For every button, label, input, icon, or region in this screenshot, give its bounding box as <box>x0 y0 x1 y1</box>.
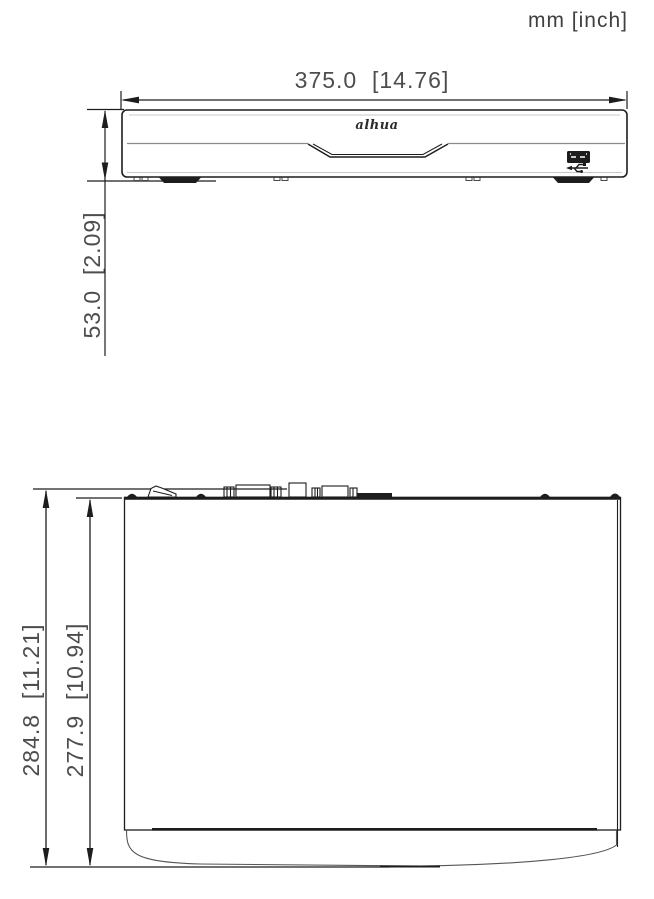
arrowhead-up-icon <box>87 499 94 518</box>
arrowhead-up-icon <box>102 110 109 128</box>
front-lip-curve <box>127 830 617 866</box>
top-outer-depth-dimension <box>30 489 390 867</box>
front-cover-notch <box>308 144 448 157</box>
screw-icon <box>127 494 137 497</box>
arrowhead-left-icon <box>121 97 139 104</box>
rear-connectors <box>127 483 620 497</box>
front-width-dimension <box>121 91 627 109</box>
front-height-dimension <box>87 110 216 357</box>
arrowhead-down-icon <box>43 848 50 867</box>
front-view <box>87 91 627 356</box>
arrowhead-right-icon <box>609 97 627 104</box>
arrowhead-up-icon <box>43 490 50 509</box>
front-feet <box>134 178 607 184</box>
power-inlet <box>289 483 306 497</box>
usb-port <box>566 151 590 173</box>
vga-connector <box>224 485 281 497</box>
foot-left <box>159 178 201 184</box>
screw-icon <box>540 494 550 497</box>
port-strip <box>357 493 392 497</box>
top-view <box>30 483 621 867</box>
screw-icon <box>196 494 206 497</box>
arrowhead-down-icon <box>87 848 94 867</box>
drawing-linework <box>0 0 654 899</box>
usb-icon <box>566 163 588 173</box>
hdmi-connector <box>312 486 357 497</box>
top-inner-depth-dimension <box>76 498 122 867</box>
front-panel <box>122 110 627 177</box>
mount-clips <box>134 178 607 181</box>
screw-icon <box>610 494 620 498</box>
top-chassis <box>124 498 621 867</box>
arrowhead-down-icon <box>102 163 109 181</box>
dimension-drawing: mm [inch] 375.0 [14.76] 53.0 [2.09] 284.… <box>0 0 654 899</box>
foot-right <box>553 178 594 184</box>
